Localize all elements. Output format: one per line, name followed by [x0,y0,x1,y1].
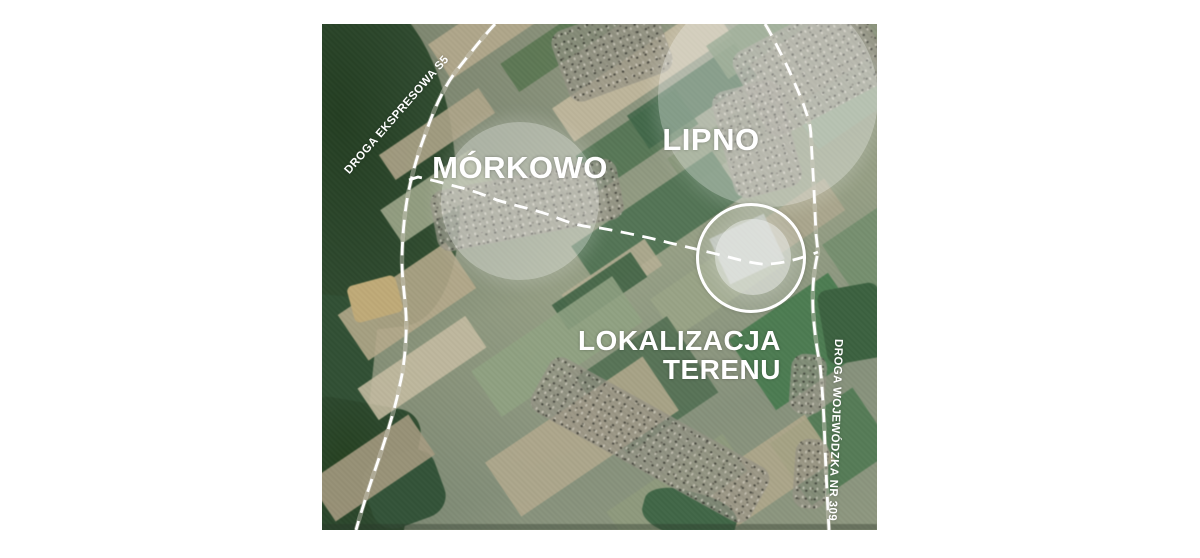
lipno-label: LIPNO [631,122,791,158]
page: MÓRKOWO LIPNO LOKALIZACJA TERENU DROGA E… [0,0,1200,558]
location-label: LOKALIZACJA TERENU [531,326,781,384]
satellite-map: MÓRKOWO LIPNO LOKALIZACJA TERENU DROGA E… [322,24,877,530]
morkowo-label: MÓRKOWO [380,150,660,186]
location-ring [696,203,806,313]
road-s5-line [356,24,495,530]
location-label-line2: TERENU [531,355,781,384]
location-label-line1: LOKALIZACJA [531,326,781,355]
